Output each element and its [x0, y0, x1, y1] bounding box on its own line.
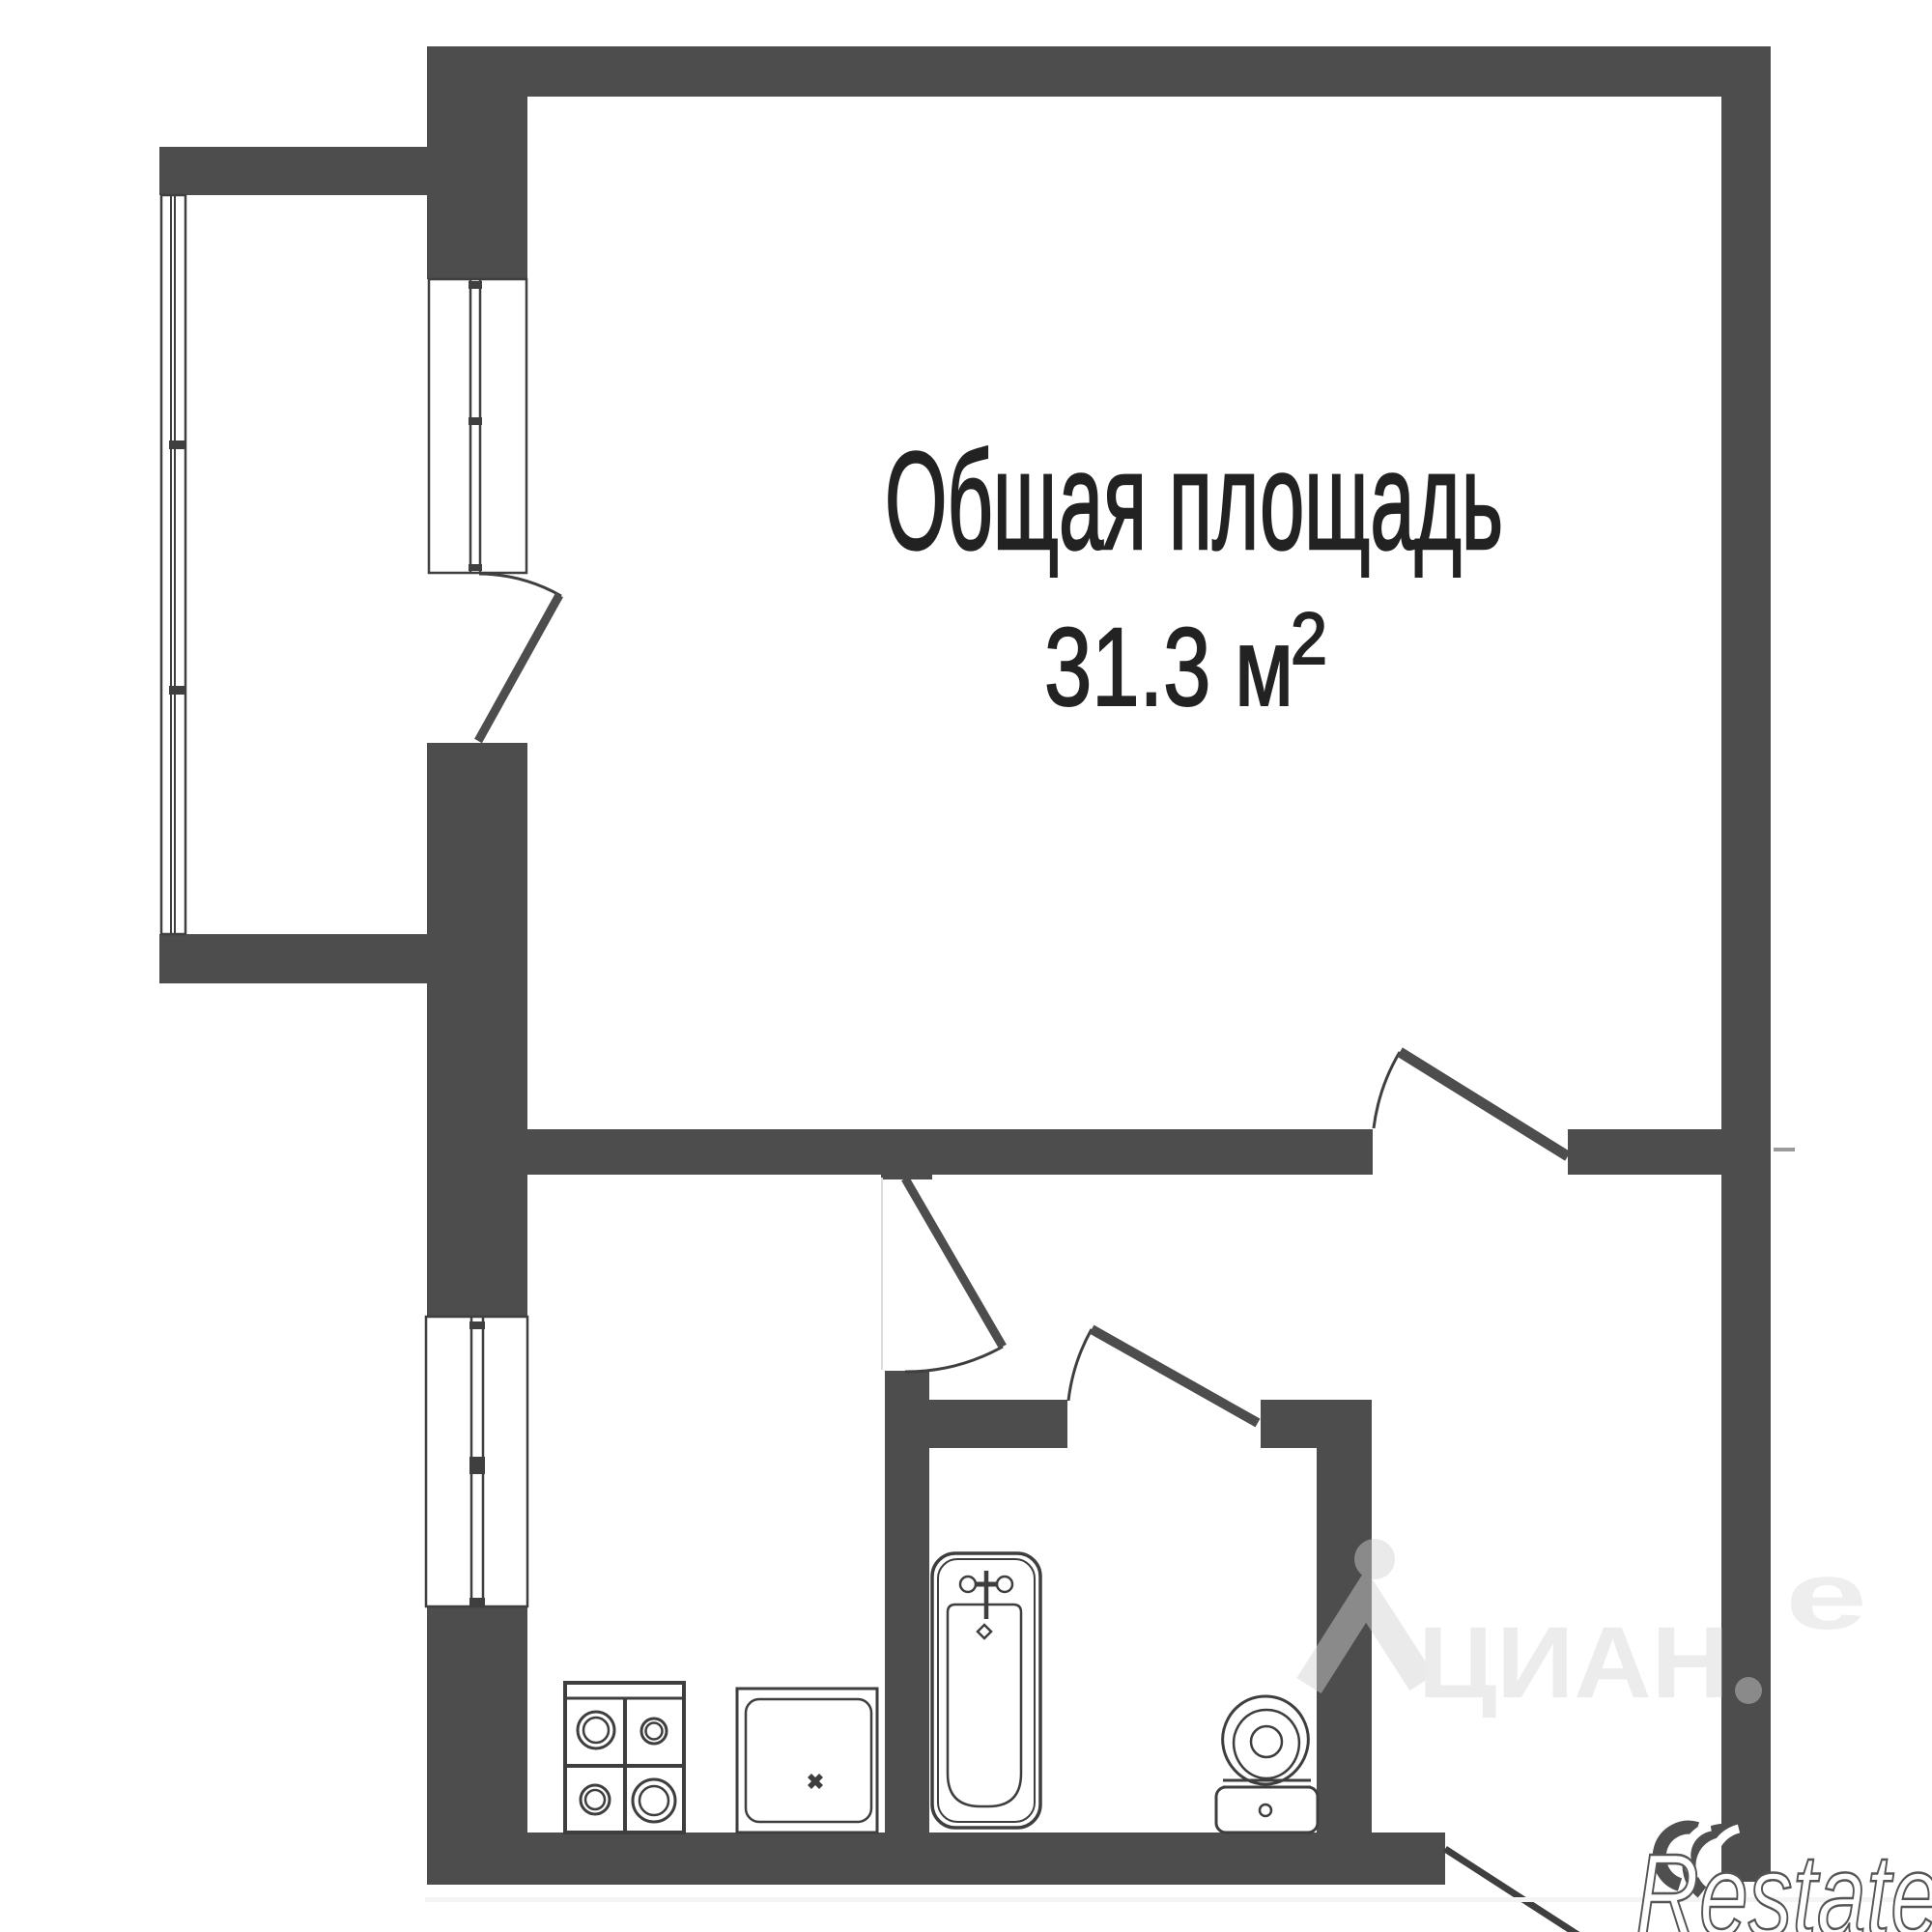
svg-text:е: е — [1785, 1542, 1867, 1650]
svg-text:2: 2 — [1291, 598, 1327, 680]
svg-text:Общая площадь: Общая площадь — [885, 423, 1503, 579]
svg-text:ЦИАН: ЦИАН — [1418, 1606, 1729, 1719]
svg-text:31.3 м: 31.3 м — [1044, 606, 1293, 729]
svg-text:Restate: Restate — [1635, 1830, 1932, 1932]
